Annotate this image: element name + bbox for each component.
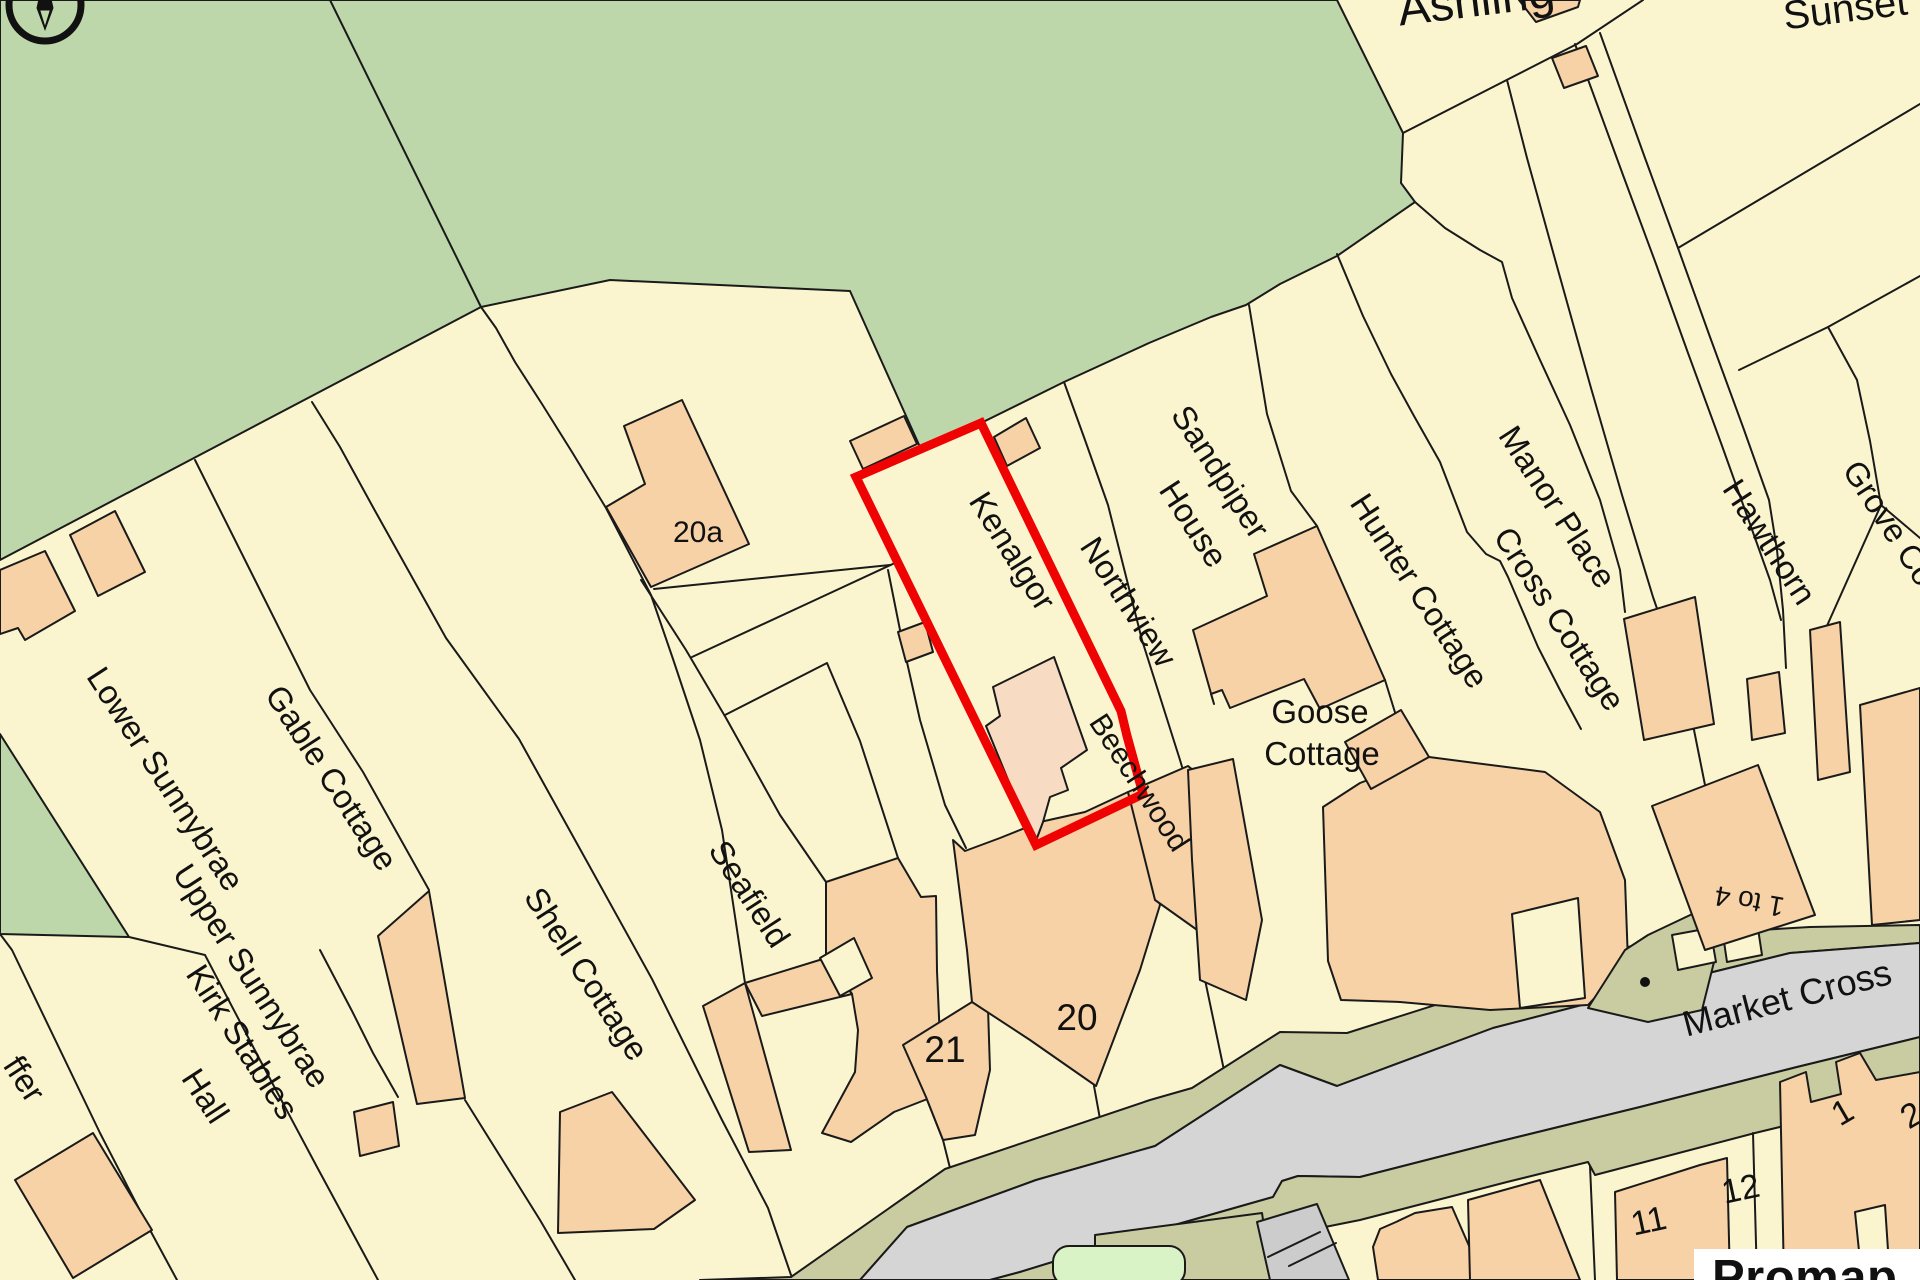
- svg-text:21: 21: [924, 1029, 965, 1070]
- svg-text:Goose: Goose: [1271, 693, 1368, 730]
- svg-text:Cottage: Cottage: [1264, 735, 1380, 772]
- svg-text:12: 12: [1718, 1167, 1763, 1212]
- svg-text:20: 20: [1056, 997, 1097, 1038]
- svg-text:Promap: Promap: [1712, 1251, 1897, 1280]
- svg-text:20a: 20a: [673, 516, 723, 549]
